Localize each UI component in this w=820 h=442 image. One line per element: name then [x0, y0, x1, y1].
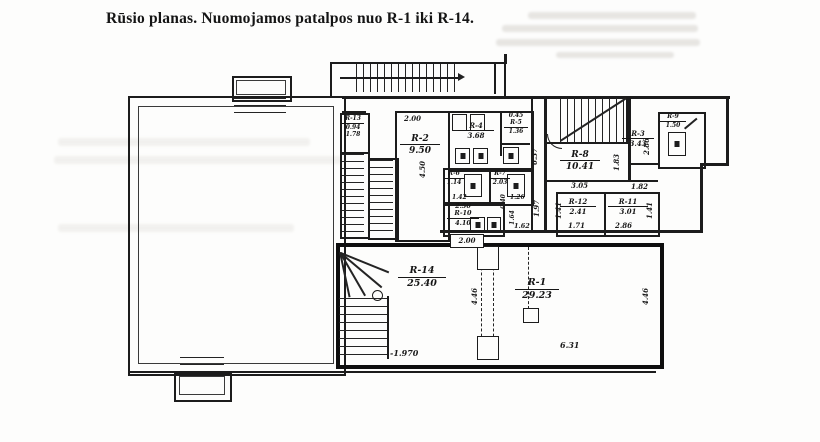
dim-r6-width: 1.42 — [452, 194, 467, 201]
room-label-r13: R-13 0.94 1.78 — [342, 116, 364, 139]
main-top-wall — [342, 96, 730, 99]
staircase-treads — [339, 298, 387, 358]
ghost-text-line — [556, 52, 674, 58]
room-label-r14: R-14 25.40 — [398, 266, 446, 290]
room-label-r2: R-2 9.50 — [400, 134, 440, 157]
dim-r2-width: 2.00 — [404, 114, 421, 123]
window-well-top-inner — [236, 80, 286, 95]
dim-r14-depth: 4.46 — [470, 288, 479, 305]
staircase-treads — [370, 160, 393, 234]
ghost-text-line — [528, 12, 696, 19]
hall-inner-wall — [138, 106, 334, 364]
dim-r8-door: 1.83 — [612, 154, 621, 171]
stair-direction-arrow — [458, 73, 465, 81]
dim-corridor-height: 6.37 — [530, 148, 539, 165]
dim-r11-bottom: 2.86 — [615, 221, 632, 230]
room-label-r5: 0.45 R-5 1.36 — [504, 113, 528, 136]
steps-top — [234, 98, 286, 113]
wall-segment — [500, 143, 530, 145]
wc-stall — [473, 148, 488, 164]
right-step-wall-v — [700, 163, 703, 232]
dim-r3-depth: 2.86 — [642, 138, 651, 155]
wc-fixture — [668, 132, 686, 156]
room-label-r12: R-12 2.41 — [560, 198, 596, 216]
stair-edge — [387, 296, 389, 359]
room-label-r8: R-8 10.41 — [560, 150, 600, 173]
scanned-floorplan-page: Rūsio planas. Nuomojamos patalpos nuo R-… — [0, 0, 820, 442]
wc-stall — [487, 217, 501, 233]
staircase-treads — [342, 154, 364, 233]
dim-r7-width: 1.26 — [510, 194, 525, 201]
dim-r12-bottom: 1.71 — [568, 221, 585, 230]
wc-stall — [455, 148, 470, 164]
room-r8-top-wall — [546, 142, 628, 144]
room-label-r1: R-1 29.23 — [515, 278, 559, 302]
wall-stub — [494, 62, 496, 94]
dim-corridor-width: 1.97 — [532, 200, 541, 217]
level-mark: -1.970 — [390, 348, 418, 358]
room-label-r4: R-4 3.68 — [458, 122, 494, 140]
room-label-r11: R-11 3.01 — [608, 198, 648, 216]
dim-r11-right: 1.41 — [645, 202, 654, 219]
dim-door-box: 2.00 — [450, 234, 484, 248]
steps-bottom — [180, 357, 224, 372]
ghost-text-line — [496, 39, 700, 46]
dim-r12-top: 3.05 — [571, 181, 588, 190]
dim-hall-c: 1.62 — [514, 222, 530, 230]
dim-r12-left: 1.41 — [554, 202, 563, 219]
stair-newel — [372, 290, 383, 301]
wall-segment — [500, 111, 502, 156]
wc-fixture — [464, 174, 482, 197]
room-r3-bottom-wall — [630, 163, 658, 165]
door-jamb — [477, 246, 499, 270]
dim-hall-a: 0.40 — [500, 194, 507, 209]
room-r8-left-wall — [544, 96, 547, 232]
page-title: Rūsio planas. Nuomojamos patalpos nuo R-… — [106, 10, 474, 28]
ground-wall — [128, 371, 656, 373]
window-well-bottom-inner — [179, 376, 225, 395]
door-jamb — [477, 336, 499, 360]
stair-direction-line — [340, 77, 458, 79]
wall-stub — [504, 54, 507, 64]
dim-r1-width: 6.31 — [560, 340, 579, 350]
right-step-wall-h — [702, 163, 729, 166]
room-label-r10: 2.50 R-10 4.10 — [447, 203, 479, 227]
ghost-text-line — [502, 25, 698, 32]
room-label-r6: R-6 1.14 — [444, 171, 464, 187]
dim-r2-depth: 4.50 — [418, 161, 427, 178]
right-outer-wall — [726, 96, 729, 166]
wc-stall — [503, 147, 519, 164]
dim-landing-width: 1.82 — [631, 182, 648, 191]
dim-r1-depth: 4.46 — [641, 288, 650, 305]
room-label-r9: R-9 1.50 — [660, 114, 686, 130]
column-box — [523, 308, 539, 323]
room-label-r7: R-7 2.03 — [490, 171, 510, 187]
